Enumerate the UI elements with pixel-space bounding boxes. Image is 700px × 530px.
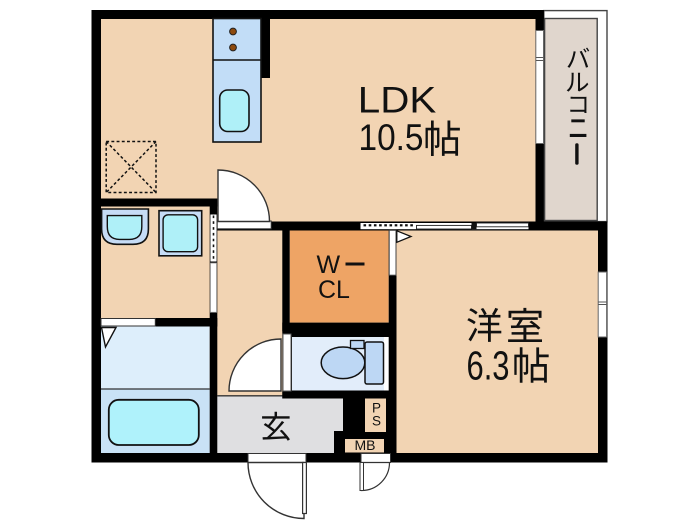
svg-text:W: W (317, 251, 341, 279)
svg-text:10.5: 10.5 (359, 117, 424, 158)
svg-text:LDK: LDK (358, 80, 437, 121)
svg-text:S: S (372, 413, 381, 428)
svg-text:CL: CL (318, 276, 350, 304)
svg-text:6.3: 6.3 (467, 343, 510, 389)
svg-text:MB: MB (355, 437, 376, 453)
